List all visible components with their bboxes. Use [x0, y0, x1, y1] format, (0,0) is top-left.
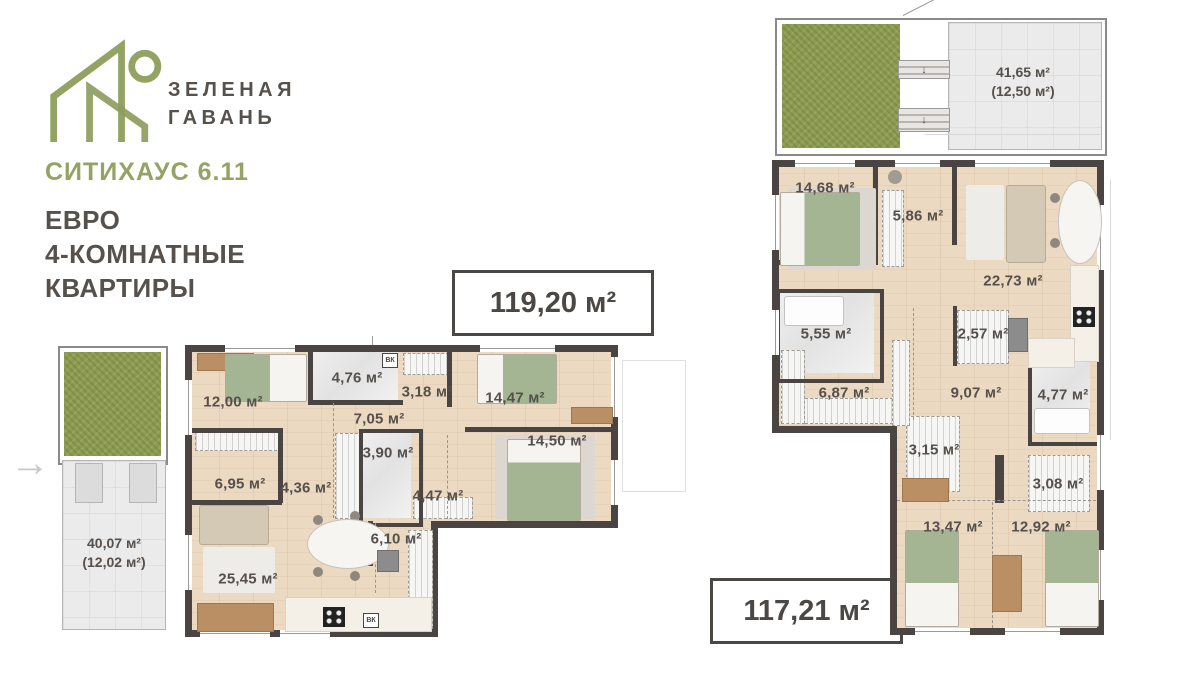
- room-area-label: 5,86 м²: [893, 209, 944, 224]
- sofa: [199, 505, 269, 545]
- room-area-label: 14,47 м²: [485, 391, 544, 406]
- vent-shaft-badge: ВК: [363, 613, 379, 628]
- bed: [1045, 530, 1099, 627]
- stairs-down: ↓: [898, 108, 950, 132]
- chair: [1050, 193, 1060, 203]
- wardrobe-zone: [800, 398, 898, 424]
- apartment-type-title: ЕВРО 4-КОМНАТНЫЕ КВАРТИРЫ: [45, 203, 245, 305]
- bathtub: [1034, 408, 1090, 434]
- wardrobe-zone: [403, 353, 449, 375]
- window: [1005, 628, 1060, 635]
- chair: [1050, 238, 1060, 248]
- chair: [350, 571, 360, 581]
- bed: [780, 192, 860, 266]
- room-area-label: 3,15 м²: [909, 443, 960, 458]
- sofa: [1006, 185, 1046, 263]
- roof-mark-line: [903, 0, 952, 16]
- terrace-area: 41,65 м²: [991, 63, 1054, 82]
- room-area-label: 13,47 м²: [923, 520, 982, 535]
- window: [611, 460, 618, 505]
- window: [975, 160, 1050, 167]
- fridge: [377, 550, 399, 572]
- washer-column: [1008, 318, 1028, 352]
- window: [772, 195, 779, 250]
- room-area-label: 3,08 м²: [1033, 477, 1084, 492]
- plan-a-lawn: [64, 352, 161, 456]
- terrace-bench: [75, 463, 103, 503]
- dimension-line: [1110, 180, 1111, 440]
- terrace-bench: [129, 463, 157, 503]
- desk: [571, 407, 613, 424]
- plan-a-terrace-label: 40,07 м² (12,02 м²): [82, 534, 145, 572]
- dimension-line: [925, 134, 1100, 135]
- floorplan-flyer: ЗЕЛЕНАЯ ГАВАНЬ СИТИХАУС 6.11 ЕВРО 4-КОМН…: [0, 0, 1200, 675]
- floorplan-b: ↓ ↓ 41,65 м² (12,50 м²): [770, 10, 1115, 665]
- pouf: [888, 170, 902, 184]
- zone-divider: [333, 403, 334, 518]
- brand-logo-house-icon: [44, 36, 170, 150]
- entry-arrow-icon: →: [10, 443, 50, 483]
- wardrobe-zone: [882, 190, 904, 267]
- terrace-area-secondary: (12,02 м²): [82, 553, 145, 572]
- interior-wall: [465, 427, 611, 432]
- room-area-label: 25,45 м²: [218, 572, 277, 587]
- brand-name-line2: ГАВАНЬ: [168, 104, 296, 132]
- entry-door: [895, 160, 940, 167]
- plan-b-lawn: [782, 24, 900, 148]
- stove-icon: [323, 607, 345, 627]
- room-area-label: 2,57 м²: [958, 327, 1009, 342]
- desk: [902, 478, 949, 502]
- bed: [905, 530, 959, 627]
- rug: [966, 185, 1004, 260]
- room-area-label: 14,68 м²: [795, 181, 854, 196]
- subtitle-line1: ЕВРО: [45, 203, 245, 237]
- window: [185, 380, 192, 435]
- window: [915, 628, 970, 635]
- room-area-label: 6,10 м²: [371, 532, 422, 547]
- stairs-down: ↓: [898, 60, 950, 79]
- room-area-label: 4,47 м²: [413, 489, 464, 504]
- chair: [313, 567, 323, 577]
- plan-a-terrace-paving: 40,07 м² (12,02 м²): [62, 460, 166, 630]
- dining-table: [1058, 180, 1102, 264]
- bed: [507, 439, 581, 521]
- brand-name-line1: ЗЕЛЕНАЯ: [168, 76, 296, 104]
- room-area-label: 6,87 м²: [819, 386, 870, 401]
- plan-b-terrace-label: 41,65 м² (12,50 м²): [991, 63, 1054, 101]
- stove-icon: [1073, 307, 1095, 327]
- room-area-label: 7,05 м²: [354, 412, 405, 427]
- window: [772, 310, 779, 355]
- room-area-label: 12,92 м²: [1011, 520, 1070, 535]
- kitchen-counter: [285, 597, 432, 632]
- interior-wall: [952, 167, 957, 245]
- room-area-label: 12,00 м²: [203, 395, 262, 410]
- bathtub: [784, 296, 844, 326]
- window: [1097, 435, 1104, 490]
- adjacent-unit-outline: [622, 360, 686, 492]
- window: [480, 345, 555, 352]
- room-area-label: 5,55 м²: [801, 327, 852, 342]
- interior-wall: [308, 400, 403, 405]
- vent-shaft-badge: ВК: [382, 353, 398, 368]
- room-area-label: 4,36 м²: [281, 481, 332, 496]
- kitchen-counter: [1028, 338, 1075, 368]
- window: [185, 535, 192, 590]
- room-area-label: 9,07 м²: [951, 386, 1002, 401]
- room-area-label: 4,76 м²: [332, 371, 383, 386]
- brand-name: ЗЕЛЕНАЯ ГАВАНЬ: [168, 76, 296, 132]
- room-area-label: 4,77 м²: [1038, 388, 1089, 403]
- floorplan-a: ВК ВК 12,00 м² 4,76 м² 3,18 м² 14,47 м² …: [185, 345, 620, 637]
- subtitle-line3: КВАРТИРЫ: [45, 271, 245, 305]
- interior-wall: [308, 352, 313, 403]
- terrace-area-secondary: (12,50 м²): [991, 82, 1054, 101]
- project-title: СИТИХАУС 6.11: [45, 158, 249, 187]
- interior-wall: [953, 306, 957, 366]
- subtitle-line2: 4-КОМНАТНЫЕ: [45, 237, 245, 271]
- room-area-label: 14,50 м²: [527, 434, 586, 449]
- room-area-label: 6,95 м²: [215, 477, 266, 492]
- desk: [992, 555, 1022, 612]
- interior-wall: [995, 455, 1004, 503]
- window: [795, 160, 855, 167]
- sideboard: [197, 603, 274, 632]
- total-area-plan-a: 119,20 м²: [452, 270, 654, 336]
- wardrobe-zone: [195, 431, 282, 451]
- interior-wall: [192, 428, 282, 433]
- room-area-label: 3,18 м²: [402, 385, 453, 400]
- room-area-label: 3,90 м²: [363, 446, 414, 461]
- terrace-area: 40,07 м²: [82, 534, 145, 553]
- wardrobe-zone: [892, 340, 910, 426]
- room-area-label: 22,73 м²: [983, 274, 1042, 289]
- window: [225, 345, 295, 352]
- zone-divider: [913, 308, 914, 420]
- zone-divider: [447, 435, 448, 519]
